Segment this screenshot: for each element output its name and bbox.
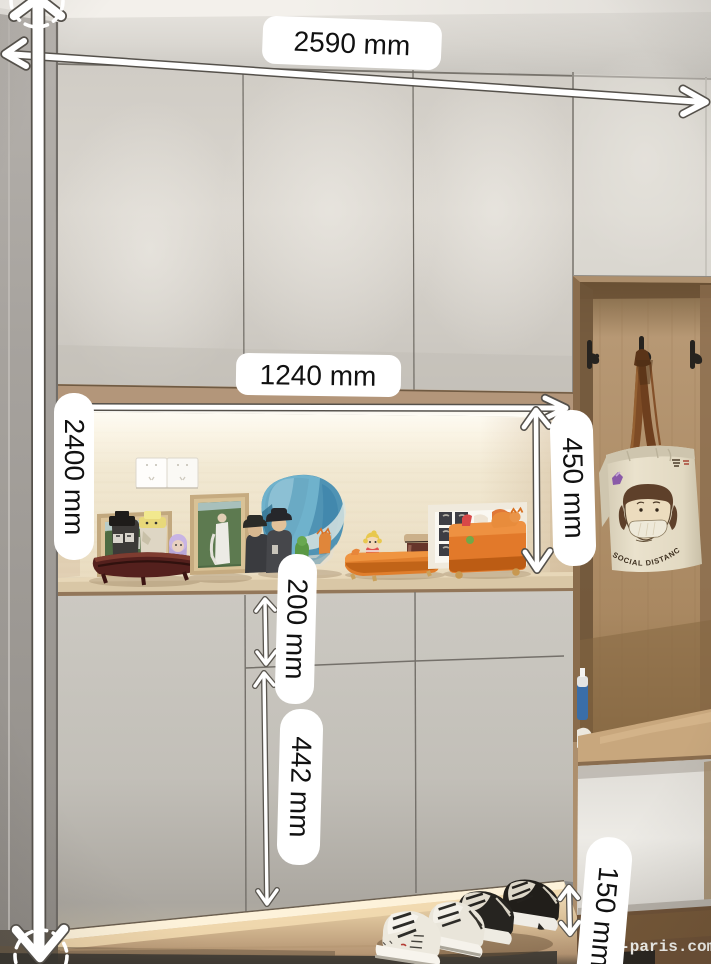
svg-text:1240 mm: 1240 mm xyxy=(259,359,376,392)
svg-text:450 mm: 450 mm xyxy=(557,437,591,539)
svg-text:200 mm: 200 mm xyxy=(280,578,314,680)
svg-text:2400 mm: 2400 mm xyxy=(59,419,90,536)
svg-text:2590 mm: 2590 mm xyxy=(293,26,411,62)
svg-text:442 mm: 442 mm xyxy=(284,736,318,838)
